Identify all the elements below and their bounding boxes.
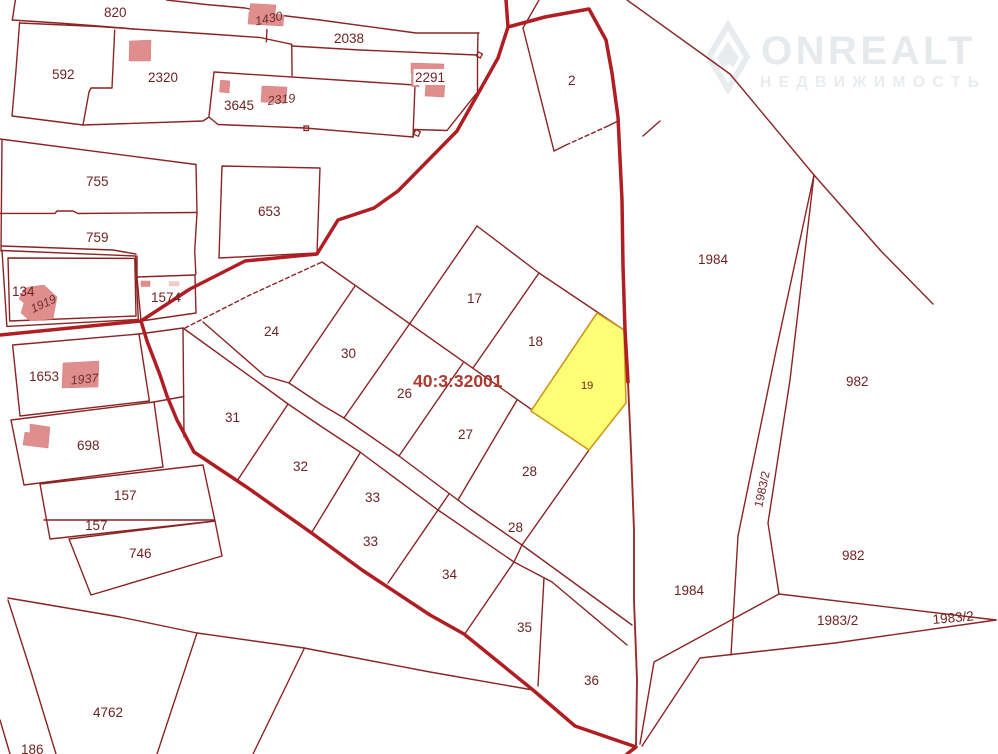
svg-text:2291: 2291: [415, 70, 445, 85]
svg-text:34: 34: [442, 567, 458, 582]
svg-text:31: 31: [225, 410, 240, 425]
svg-text:1653: 1653: [29, 369, 59, 384]
svg-text:1574: 1574: [151, 290, 182, 305]
svg-text:17: 17: [467, 291, 482, 306]
svg-text:28: 28: [522, 464, 537, 479]
svg-text:30: 30: [341, 346, 356, 361]
svg-text:28: 28: [508, 520, 523, 535]
svg-text:19: 19: [581, 380, 593, 392]
svg-text:26: 26: [397, 386, 412, 401]
svg-text:653: 653: [258, 204, 281, 219]
svg-text:1984: 1984: [698, 252, 729, 267]
svg-text:759: 759: [86, 230, 109, 245]
svg-text:592: 592: [52, 67, 75, 82]
svg-text:33: 33: [363, 534, 378, 549]
svg-text:1984: 1984: [674, 583, 705, 598]
svg-text:1937: 1937: [70, 371, 100, 387]
svg-text:4762: 4762: [93, 705, 123, 720]
svg-text:27: 27: [458, 427, 473, 442]
svg-text:33: 33: [365, 490, 380, 505]
svg-text:36: 36: [584, 673, 599, 688]
svg-text:186: 186: [21, 742, 44, 754]
svg-text:ONREALT: ONREALT: [761, 29, 976, 73]
svg-text:35: 35: [517, 620, 532, 635]
svg-text:982: 982: [846, 374, 869, 389]
svg-text:18: 18: [528, 334, 543, 349]
svg-text:746: 746: [129, 546, 152, 561]
svg-text:755: 755: [86, 174, 109, 189]
svg-text:24: 24: [264, 324, 280, 339]
svg-text:982: 982: [842, 548, 865, 563]
svg-text:40:3:32001: 40:3:32001: [413, 371, 503, 391]
svg-text:157: 157: [85, 518, 108, 533]
svg-text:3645: 3645: [224, 98, 254, 113]
svg-text:1983/2: 1983/2: [817, 613, 858, 628]
svg-text:698: 698: [77, 438, 100, 453]
svg-text:2: 2: [568, 73, 576, 88]
svg-text:2320: 2320: [148, 70, 178, 85]
svg-text:820: 820: [104, 5, 127, 20]
svg-text:НЕДВИЖИМОСТЬ: НЕДВИЖИМОСТЬ: [760, 74, 986, 91]
svg-text:134: 134: [12, 284, 35, 299]
svg-text:2038: 2038: [334, 31, 364, 46]
svg-text:32: 32: [293, 459, 308, 474]
svg-text:2319: 2319: [266, 91, 296, 108]
svg-text:157: 157: [114, 488, 137, 503]
